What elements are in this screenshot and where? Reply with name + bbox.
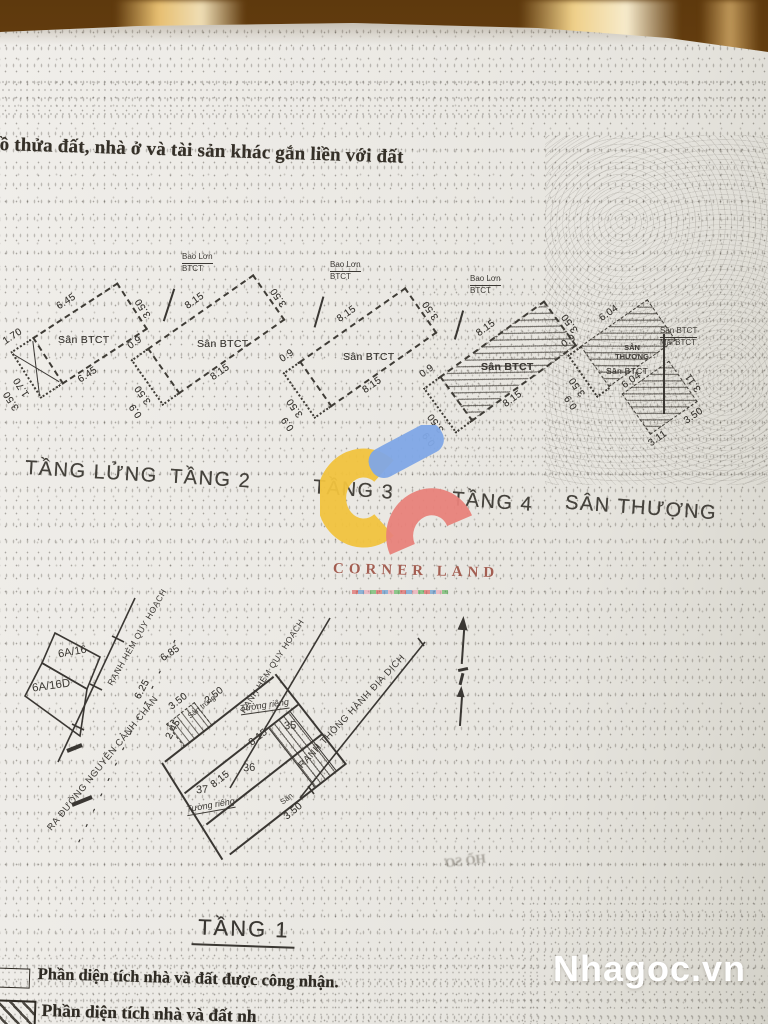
floor-label-san-thuong: SÂN THƯỢNG bbox=[564, 492, 717, 526]
bleed-through-text: HỒ SƠ bbox=[444, 851, 486, 872]
plan-area-label: Sân BTCT bbox=[58, 334, 109, 346]
legend-text: Phần diện tích nhà và đất nh bbox=[41, 1000, 256, 1024]
callout-line1: Bao Lơn bbox=[182, 252, 213, 264]
floor-label-tang-lung: TẦNG LỬNG bbox=[24, 457, 158, 488]
callout-line2: BTCT bbox=[470, 286, 501, 296]
callout-line2: BTCT bbox=[182, 264, 213, 274]
lot-number: 36 bbox=[243, 762, 256, 775]
callout-line1: Bao Lơn bbox=[470, 274, 501, 286]
callout-line2: BTCT bbox=[330, 272, 361, 282]
balcony-callout: Bao Lơn BTCT bbox=[182, 252, 213, 274]
noise-band bbox=[0, 78, 768, 118]
plan-area-label: Sân BTCT bbox=[343, 351, 394, 363]
nhagoc-watermark: Nhagoc.vn bbox=[553, 948, 746, 990]
lot-number: 35 bbox=[284, 720, 297, 733]
callout-line1: Bao Lơn bbox=[330, 260, 361, 272]
corner-land-logo-text: CORNER LAND bbox=[333, 561, 500, 582]
legend-swatch-hatched bbox=[0, 999, 36, 1024]
legend-swatch-empty bbox=[0, 967, 30, 988]
legend-text: Phần diện tích nhà và đất được công nhận… bbox=[37, 964, 338, 992]
callout-leader bbox=[454, 310, 464, 339]
balcony-callout: Bao Lơn BTCT bbox=[330, 260, 361, 282]
corner-land-logo-icon bbox=[320, 425, 490, 575]
photo-of-document: ồ thửa đất, nhà ở và tài sản khác gắn li… bbox=[0, 0, 768, 1024]
document-paper: ồ thửa đất, nhà ở và tài sản khác gắn li… bbox=[0, 0, 768, 1024]
site-plan-title: TẦNG 1 bbox=[191, 914, 295, 949]
dim-label: 0.9 bbox=[418, 362, 436, 380]
page-title: ồ thửa đất, nhà ở và tài sản khác gắn li… bbox=[0, 134, 404, 169]
plan-area-label: SÂN THƯỢNG bbox=[608, 344, 656, 361]
plan-area-label: Sân BTCT bbox=[606, 366, 648, 376]
floor-label-tang-2: TẦNG 2 bbox=[169, 466, 252, 494]
dim-label: 0.9 bbox=[278, 347, 296, 365]
lot-number: 37 bbox=[196, 784, 209, 797]
balcony-callout: Bao Lơn BTCT bbox=[470, 274, 501, 296]
plan-area-label: Sân BTCT bbox=[481, 361, 534, 373]
callout-leader bbox=[314, 296, 325, 327]
callout-leader bbox=[163, 289, 175, 322]
plan-area-label: Sân BTCT bbox=[197, 338, 248, 350]
